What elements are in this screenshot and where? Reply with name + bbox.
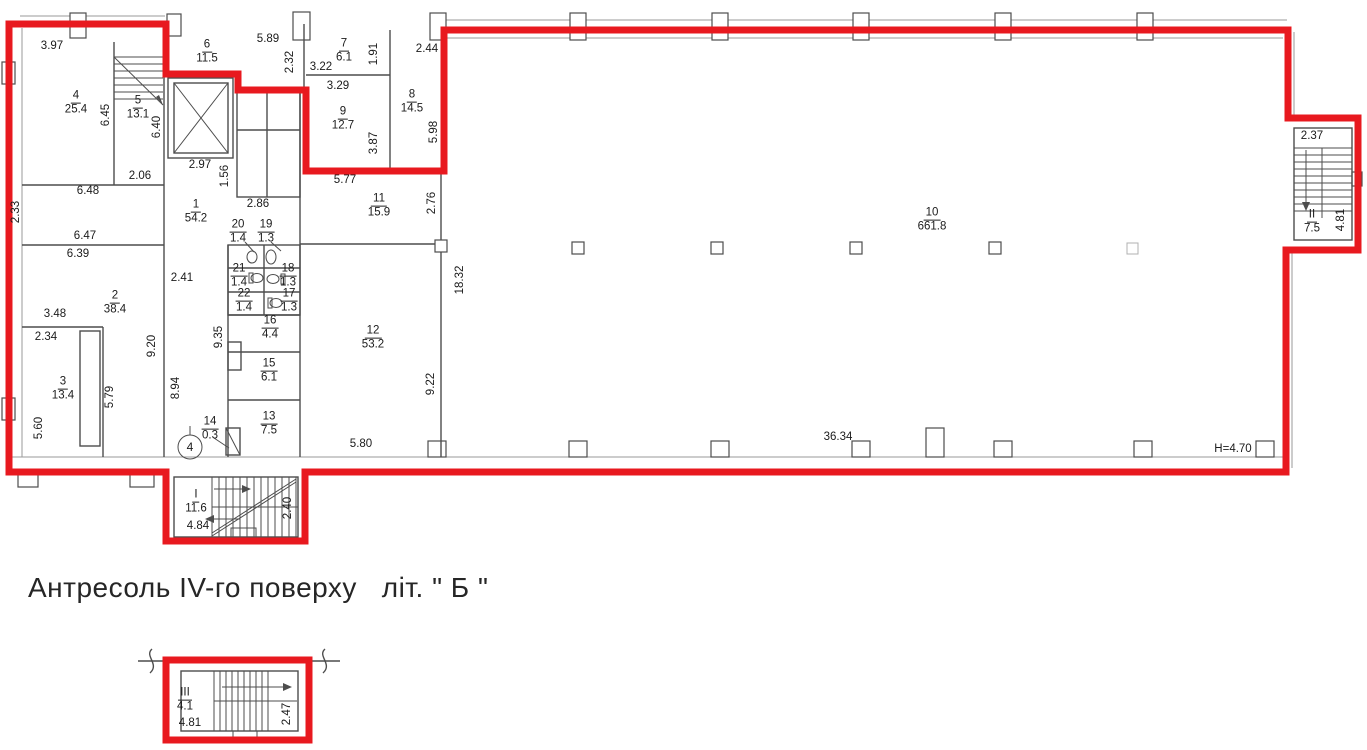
dim-label-26: 9.35 — [213, 326, 225, 348]
room-number: 5 — [133, 95, 143, 109]
dim-label-1: 5.89 — [257, 33, 279, 45]
room-label-22: 221.4 — [236, 288, 253, 315]
dim-label-13: 1.56 — [219, 165, 231, 187]
room-number: 11 — [371, 193, 387, 207]
room-label-1: 154.2 — [185, 199, 207, 226]
room-label-20: 201.4 — [230, 219, 247, 246]
dim-label-10: 3.87 — [368, 132, 380, 154]
room-number: 17 — [281, 288, 298, 302]
room-area: 54.2 — [185, 213, 207, 226]
room-area: 53.2 — [362, 339, 384, 352]
room-label-7: 76.1 — [336, 38, 352, 65]
dim-label-8: 6.40 — [151, 116, 163, 138]
dim-label-34: 2.37 — [1301, 130, 1323, 142]
room-number: 6 — [202, 39, 212, 53]
dim-label-33: H=4.70 — [1214, 443, 1251, 455]
dim-label-28: 8.94 — [170, 377, 182, 399]
room-number: 15 — [261, 358, 278, 372]
room-area: 6.1 — [336, 52, 352, 65]
dim-label-25: 9.20 — [146, 335, 158, 357]
floor-plan-page: 3.975.892.323.222.441.913.296.456.405.98… — [0, 0, 1367, 750]
dim-label-3: 3.22 — [310, 61, 332, 73]
room-area: 13.1 — [127, 109, 149, 122]
room-area: 6.1 — [261, 372, 278, 385]
room-number: II — [1307, 209, 1317, 223]
room-number: 18 — [280, 263, 297, 277]
room-area: 11.6 — [185, 503, 207, 516]
room-number: 14 — [202, 416, 219, 430]
room-label-21: 211.4 — [231, 263, 248, 290]
room-area: 25.4 — [65, 104, 87, 117]
room-number: 3 — [58, 376, 68, 390]
room-label-11: 1115.9 — [368, 193, 390, 220]
dim-label-12: 2.06 — [129, 170, 151, 182]
dim-label-14: 6.48 — [77, 185, 99, 197]
dim-label-30: 9.22 — [425, 373, 437, 395]
dim-label-15: 2.86 — [247, 198, 269, 210]
room-number: III — [178, 687, 192, 701]
room-number: I — [192, 489, 199, 503]
dim-label-21: 2.41 — [171, 272, 193, 284]
room-label-3: 313.4 — [52, 376, 74, 403]
dim-label-17: 2.76 — [426, 192, 438, 214]
dim-label-6: 3.29 — [327, 80, 349, 92]
dim-label-31: 5.80 — [350, 438, 372, 450]
room-label-10: 10661.8 — [918, 207, 947, 234]
floor-plan-drawing — [0, 0, 1367, 750]
room-number: 20 — [230, 219, 247, 233]
envelope-lines — [12, 16, 1294, 468]
elevator-shaft — [168, 78, 233, 158]
room-label-14: 140.3 — [202, 416, 219, 443]
room-number: 1 — [191, 199, 201, 213]
room-label-19: 191.3 — [258, 219, 275, 246]
room-label-8: 814.5 — [401, 89, 423, 116]
room-number: 7 — [339, 38, 349, 52]
dim-label-35: 4.81 — [1335, 209, 1347, 231]
hall-columns — [435, 240, 1138, 254]
closet-block — [237, 88, 300, 197]
room-number: 10 — [924, 207, 941, 221]
room-area: 7.5 — [261, 425, 278, 438]
room-label-4: 425.4 — [65, 90, 87, 117]
room-number: 8 — [407, 89, 417, 103]
dim-label-18: 2.33 — [10, 201, 22, 223]
room-area: 1.3 — [258, 233, 275, 246]
dim-label-29: 5.60 — [33, 417, 45, 439]
room-label-17: 171.3 — [281, 288, 298, 315]
dim-label-5: 1.91 — [368, 43, 380, 65]
room-label-5: 513.1 — [127, 95, 149, 122]
room-label-12: 1253.2 — [362, 325, 384, 352]
room-area: 38.4 — [104, 304, 126, 317]
dim-label-16: 5.77 — [334, 174, 356, 186]
dim-label-4: 2.44 — [416, 43, 438, 55]
dim-label-19: 6.47 — [74, 230, 96, 242]
room-label-16: 164.4 — [262, 315, 279, 342]
dim-label-27: 5.79 — [104, 386, 116, 408]
room-label-I: I11.6 — [185, 489, 207, 516]
room-number: 22 — [236, 288, 253, 302]
dim-label-7: 6.45 — [100, 104, 112, 126]
room-number: 2 — [110, 290, 120, 304]
dim-label-23: 3.48 — [44, 308, 66, 320]
dim-label-38: 4.81 — [179, 717, 201, 729]
room-number: 4 — [71, 90, 81, 104]
room-area: 13.4 — [52, 390, 74, 403]
room-area: 4.4 — [262, 329, 279, 342]
dim-label-37: 2.40 — [282, 497, 294, 519]
room-label-15: 156.1 — [261, 358, 278, 385]
room-area: 1.4 — [236, 302, 253, 315]
dim-label-0: 3.97 — [41, 40, 63, 52]
room-label-18: 181.3 — [280, 263, 297, 290]
dim-label-24: 2.34 — [35, 331, 57, 343]
dim-label-11: 2.97 — [189, 159, 211, 171]
dim-label-2: 2.32 — [284, 51, 296, 73]
room-label-13: 137.5 — [261, 411, 278, 438]
room-number: 19 — [258, 219, 275, 233]
room-number: 13 — [261, 411, 278, 425]
plan-caption: Антресоль IV-го поверху літ. " Б " — [28, 572, 488, 604]
room-number: 9 — [338, 106, 348, 120]
room-area: 1.3 — [280, 277, 297, 290]
dim-label-9: 5.98 — [428, 121, 440, 143]
dim-label-20: 6.39 — [67, 248, 89, 260]
dim-label-39: 2.47 — [281, 703, 293, 725]
room-area: 661.8 — [918, 221, 947, 234]
room-label-9: 912.7 — [332, 106, 354, 133]
room-label-III: III4.1 — [177, 687, 193, 714]
room-label-6: 611.5 — [196, 39, 218, 66]
room-area: 11.5 — [196, 53, 218, 66]
room-area: 7.5 — [1304, 223, 1320, 236]
room-area: 15.9 — [368, 207, 390, 220]
position-marker-number: 4 — [187, 440, 194, 454]
room-area: 0.3 — [202, 430, 219, 443]
room-area: 4.1 — [177, 701, 193, 714]
room-area: 1.3 — [281, 302, 298, 315]
room-area: 14.5 — [401, 103, 423, 116]
dim-label-36: 4.84 — [187, 520, 209, 532]
room-number: 16 — [262, 315, 279, 329]
room-area: 1.4 — [230, 233, 247, 246]
room-number: 12 — [365, 325, 382, 339]
dim-label-32: 36.34 — [824, 431, 853, 443]
room-label-II: II7.5 — [1304, 209, 1320, 236]
dim-label-22: 18.32 — [454, 266, 466, 295]
room-area: 12.7 — [332, 120, 354, 133]
room-label-2: 238.4 — [104, 290, 126, 317]
red-outline-main — [9, 24, 1358, 541]
room-number: 21 — [231, 263, 248, 277]
